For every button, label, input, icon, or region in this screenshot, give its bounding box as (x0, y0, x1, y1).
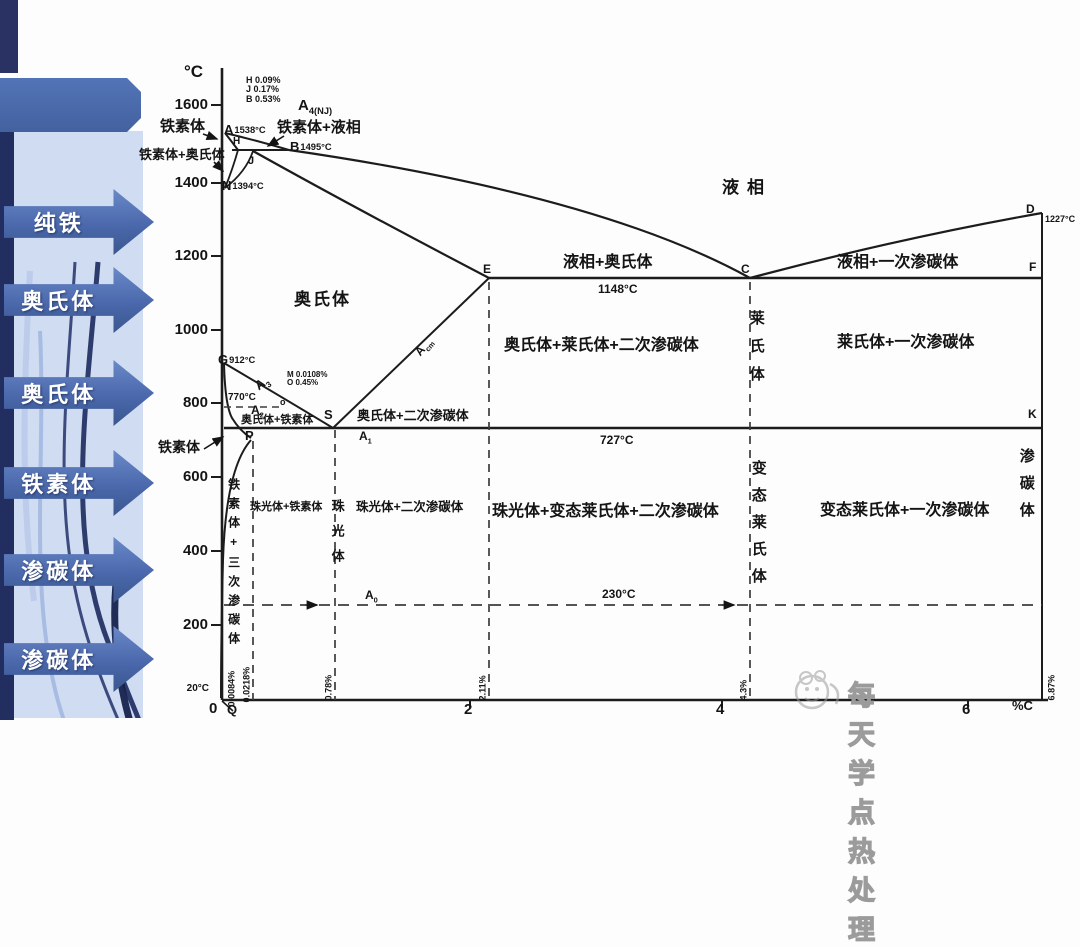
y-tick-1200: 1200 (172, 248, 208, 264)
region-austenite: 奥氏体 (294, 291, 351, 309)
comp-078: 0.78% (325, 675, 334, 701)
region-ledeburite: 莱氏体 (748, 310, 764, 394)
region-liquid: 液相 (722, 179, 772, 197)
region-pearlite-ferrite: 珠光体+铁素体 (250, 502, 322, 514)
mo-legend-o: O 0.45% (287, 379, 327, 387)
point-k: K (1028, 408, 1037, 421)
arrow-ferrite-mid (204, 437, 223, 449)
point-j: J (248, 156, 254, 168)
point-p: P (245, 429, 254, 443)
comp-00084: 0.0084% (228, 671, 237, 707)
arrow-ferrite-liquid (268, 136, 284, 146)
phase-diagram-lines (0, 0, 1080, 748)
comp-43: 4.3% (740, 680, 749, 701)
a1-sub: 1 (368, 436, 372, 445)
hjb-legend: H 0.09% J 0.17% B 0.53% (246, 76, 281, 104)
region-aust-led-cem2: 奥氏体+莱氏体+二次渗碳体 (504, 338, 699, 355)
isotherm-1148: 1148°C (598, 283, 638, 296)
liquidus-bc (289, 150, 750, 278)
region-aust-cem2: 奥氏体+二次渗碳体 (357, 409, 469, 423)
point-g: G912°C (218, 353, 255, 367)
a1-main: A (359, 429, 368, 443)
watermark-logo-icon (790, 666, 850, 714)
y-tick-1600: 1600 (172, 97, 208, 113)
point-e: E (483, 263, 491, 276)
watermark: 每天学点热处理 (790, 666, 850, 719)
y-axis-unit: °C (184, 63, 203, 81)
isotherm-230: 230°C (602, 588, 636, 601)
slide-root: { "sidebar": { "items": [ {"label": "纯铁"… (0, 0, 1080, 748)
region-pearlite-tled-cem2: 珠光体+变态莱氏体+二次渗碳体 (492, 504, 719, 521)
region-pearlite-cem2: 珠光体+二次渗碳体 (356, 501, 463, 514)
point-o-marker: o (280, 398, 286, 407)
comp-687: 6.87% (1048, 675, 1057, 701)
region-liquid-austenite: 液相+奥氏体 (563, 255, 652, 272)
region-pearlite: 珠光体 (330, 499, 344, 574)
a4-sub: 4(NJ) (309, 106, 332, 116)
point-c: C (741, 263, 750, 276)
a0-sub: 0 (374, 595, 378, 604)
x-tick-2: 2 (464, 702, 472, 718)
point-s: S (324, 408, 333, 422)
point-b-letter: B (290, 139, 299, 154)
comp-211: 2.11% (479, 675, 488, 700)
point-a-temp: 1538°C (234, 125, 265, 135)
se-line-acm (333, 278, 489, 428)
y-tick-400: 400 (172, 543, 208, 559)
a1-mark: A1 (359, 430, 372, 445)
comp-00218: 0.0218% (243, 667, 252, 703)
mo-legend: M 0.0108% O 0.45% (287, 371, 327, 388)
x-origin: 0 (209, 701, 217, 717)
region-cementite: 渗碳体 (1018, 448, 1034, 529)
region-ferrite-austenite: 铁素体+奥氏体 (139, 148, 225, 162)
region-tled-cem1: 变态莱氏体+一次渗碳体 (820, 503, 989, 520)
watermark-text: 每天学点热处理 (848, 674, 878, 947)
y-tick-600: 600 (172, 469, 208, 485)
y-tick-1400: 1400 (172, 175, 208, 191)
region-liquid-cem1: 液相+一次渗碳体 (837, 255, 958, 272)
isotherm-727: 727°C (600, 434, 634, 447)
a0-mark: A0 (365, 589, 378, 604)
region-t-ledeburite: 变态莱氏体 (750, 460, 766, 595)
a4-main: A (298, 97, 309, 114)
region-led-cem1: 莱氏体+一次渗碳体 (837, 335, 974, 352)
y-tick-200: 200 (172, 617, 208, 633)
x-axis-unit: %C (1012, 699, 1033, 713)
point-a: A1538°C (224, 123, 266, 137)
y-tick-800: 800 (172, 395, 208, 411)
point-d-temp: 1227°C (1045, 215, 1075, 224)
point-n: N1394°C (222, 179, 264, 193)
point-g-temp: 912°C (229, 355, 255, 365)
point-a-letter: A (224, 122, 233, 137)
point-n-letter: N (222, 178, 231, 193)
arrow-ferrite-top (203, 134, 217, 139)
point-n-temp: 1394°C (232, 181, 263, 191)
region-aust-ferrite-small: 奥氏体+铁素体 (241, 415, 313, 427)
solidus-je (253, 151, 489, 278)
a0-main: A (365, 588, 374, 602)
x-tick-6: 6 (962, 702, 970, 718)
point-h: H (233, 137, 240, 148)
region-ferrite-mid: 铁素体 (158, 440, 200, 455)
region-ferrite-cem3: 铁素体+三次渗碳体 (227, 478, 240, 651)
point-g-letter: G (218, 352, 228, 367)
room-temp-label: 20°C (173, 684, 209, 695)
a4-mark: A4(NJ) (298, 98, 332, 117)
point-d: D (1026, 203, 1035, 216)
region-ferrite-liquid: 铁素体+液相 (277, 120, 361, 136)
region-ferrite-top: 铁素体 (160, 119, 205, 135)
hjb-legend-b: B 0.53% (246, 95, 281, 104)
point-b-temp: 1495°C (300, 142, 331, 152)
point-f: F (1029, 261, 1036, 274)
point-b: B1495°C (290, 140, 332, 154)
x-tick-4: 4 (716, 702, 724, 718)
y-tick-1000: 1000 (172, 322, 208, 338)
isotherm-770: 770°C (228, 393, 256, 404)
